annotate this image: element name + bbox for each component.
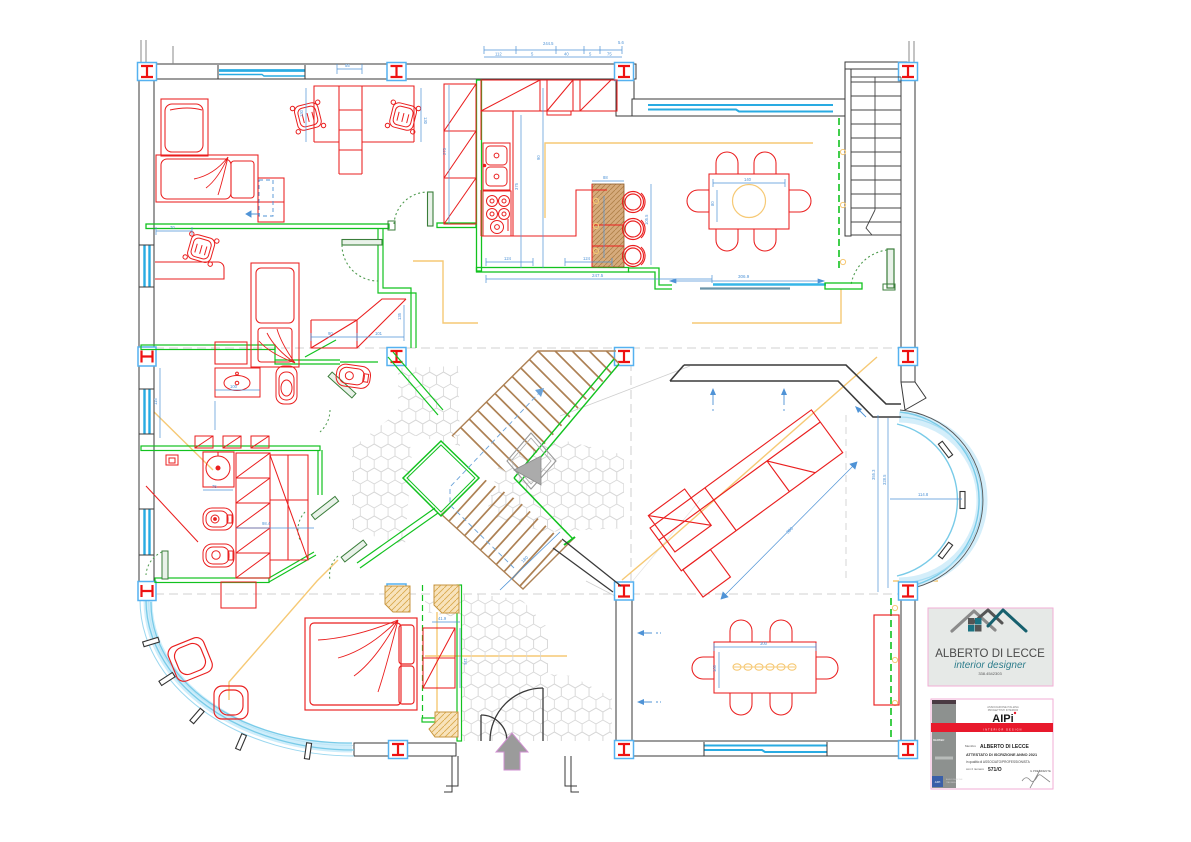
svg-text:75: 75 <box>212 484 217 489</box>
svg-text:300: 300 <box>760 641 768 646</box>
svg-text:355.3: 355.3 <box>871 469 876 480</box>
svg-text:247.5: 247.5 <box>592 273 604 278</box>
svg-text:180: 180 <box>712 664 717 672</box>
svg-text:PROGETTISTI INTERIOR: PROGETTISTI INTERIOR <box>988 708 1019 712</box>
svg-text:100: 100 <box>230 384 238 389</box>
svg-text:75: 75 <box>607 52 612 57</box>
svg-text:AIPi: AIPi <box>935 780 941 784</box>
svg-text:338.4542303: 338.4542303 <box>978 671 1002 676</box>
svg-text:124: 124 <box>504 256 512 261</box>
svg-text:571/O: 571/O <box>988 767 1002 773</box>
svg-text:80: 80 <box>710 201 715 206</box>
svg-text:112: 112 <box>495 52 502 57</box>
svg-text:115: 115 <box>153 398 158 405</box>
svg-text:98.4: 98.4 <box>262 521 271 526</box>
svg-text:114.8: 114.8 <box>918 492 929 497</box>
svg-text:MEMBER: MEMBER <box>933 738 945 742</box>
svg-text:130: 130 <box>299 109 304 117</box>
svg-text:ALBERTO DI LECCE: ALBERTO DI LECCE <box>935 648 1045 660</box>
svg-text:70: 70 <box>170 225 175 230</box>
svg-text:55: 55 <box>345 63 350 68</box>
svg-text:Membro: Membro <box>965 744 976 748</box>
svg-text:ASSOCIAZIONE: ASSOCIAZIONE <box>946 778 963 781</box>
svg-text:interior designer: interior designer <box>954 660 1026 671</box>
svg-text:328.5: 328.5 <box>882 474 887 485</box>
svg-text:90: 90 <box>536 155 541 160</box>
svg-text:40: 40 <box>564 52 569 57</box>
svg-text:101: 101 <box>375 331 383 336</box>
svg-text:con il numero: con il numero <box>966 767 984 771</box>
svg-text:375: 375 <box>514 182 519 190</box>
svg-text:124: 124 <box>583 256 591 261</box>
svg-text:244.5: 244.5 <box>543 41 554 46</box>
svg-text:INTERIOR DESIGN: INTERIOR DESIGN <box>983 729 1022 732</box>
svg-text:105.5: 105.5 <box>644 214 649 225</box>
svg-text:5.6: 5.6 <box>618 40 624 45</box>
svg-text:306.9: 306.9 <box>738 274 750 279</box>
svg-text:90: 90 <box>328 331 333 336</box>
svg-text:in qualità di ASSOCIATO/PROFES: in qualità di ASSOCIATO/PROFESSIONISTA <box>966 760 1031 764</box>
svg-text:ATTESTATO DI ISCRIZIONE ANNO: ATTESTATO DI ISCRIZIONE ANNO 2021 <box>966 753 1037 757</box>
svg-text:AIPi: AIPi <box>992 713 1013 725</box>
svg-text:41.9: 41.9 <box>438 616 447 621</box>
svg-text:130: 130 <box>423 117 428 125</box>
svg-text:ITALIANA: ITALIANA <box>946 781 956 784</box>
svg-text:IL PRESIDENTE: IL PRESIDENTE <box>1030 769 1051 773</box>
svg-text:135: 135 <box>397 312 402 320</box>
svg-text:ALBERTO DI LECCE: ALBERTO DI LECCE <box>980 744 1029 750</box>
svg-text:116: 116 <box>463 658 468 665</box>
svg-text:140: 140 <box>744 177 752 182</box>
svg-text:273: 273 <box>442 147 447 155</box>
svg-text:88: 88 <box>603 175 608 180</box>
